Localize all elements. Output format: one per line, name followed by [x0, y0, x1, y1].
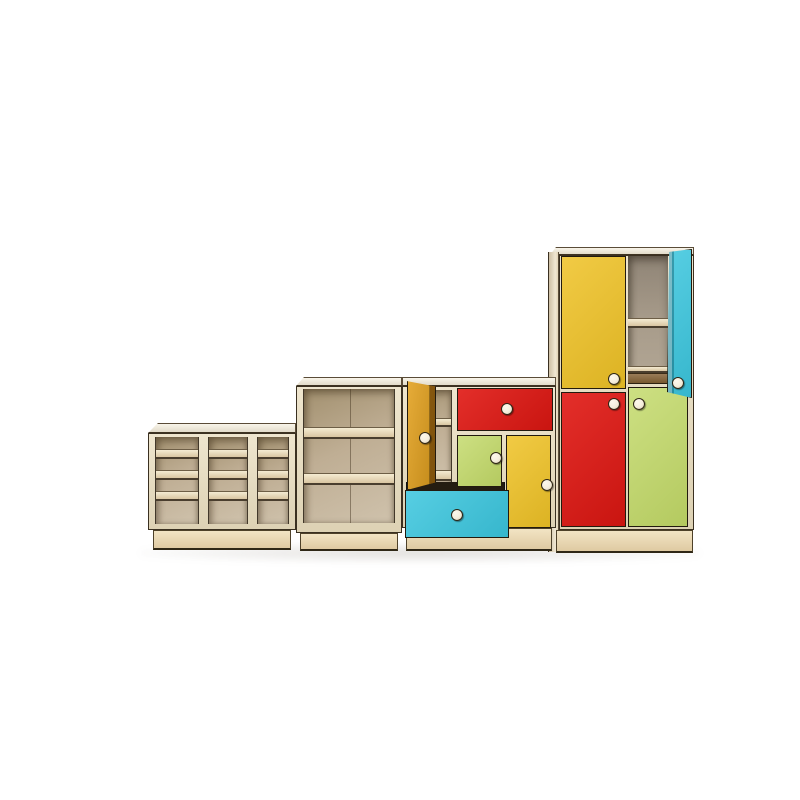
bookshelf-unit — [296, 377, 402, 551]
cubby-shelf — [209, 449, 247, 459]
wardrobe-lime-door-knob — [633, 398, 645, 410]
bookshelf-back-seam — [350, 389, 351, 523]
cabinet-cyan-drawer-knob — [451, 509, 463, 521]
wardrobe-bay-bottom-shelf-edge — [628, 366, 668, 373]
cubby-shelf — [156, 449, 198, 459]
wardrobe-red-door-knob — [608, 398, 620, 410]
cubby-column-1 — [155, 437, 199, 524]
mixed-cabinet-unit — [402, 377, 556, 551]
cabinet-orange-door-knob — [419, 432, 431, 444]
wardrobe-plinth — [556, 530, 693, 553]
wardrobe-bay-shelf — [628, 318, 668, 328]
cubby-unit — [148, 423, 296, 550]
wardrobe-cyan-door-knob — [672, 377, 684, 389]
product-render-scene — [0, 0, 800, 800]
cubby-top-panel — [148, 423, 296, 433]
cubby-shelf — [156, 470, 198, 480]
bookshelf-top-panel — [296, 377, 402, 386]
cubby-shelf — [258, 470, 288, 480]
wardrobe-bay-bottom-shelf — [628, 373, 668, 384]
cubby-column-3 — [257, 437, 289, 524]
cubby-plinth — [153, 530, 291, 550]
wardrobe-yellow-door-knob — [608, 373, 620, 385]
cubby-shelf — [209, 491, 247, 501]
cubby-column-2 — [208, 437, 248, 524]
cubby-shelf — [258, 491, 288, 501]
cabinet-red-drawer-knob — [501, 403, 513, 415]
wardrobe-unit — [548, 247, 695, 553]
wardrobe-red-door — [561, 392, 626, 527]
wardrobe-open-cyan-door — [667, 249, 692, 398]
cabinet-yellow-door-knob — [541, 479, 553, 491]
bookshelf-shelf — [304, 427, 394, 439]
wardrobe-open-bay — [628, 256, 668, 384]
cubby-shelf — [258, 449, 288, 459]
cabinet-lime-door-knob — [490, 452, 502, 464]
cubby-shelf — [156, 491, 198, 501]
wardrobe-yellow-door — [561, 256, 626, 389]
cubby-shelf — [209, 470, 247, 480]
bookshelf-shelf — [304, 473, 394, 485]
bookshelf-plinth — [300, 533, 398, 551]
bookshelf-bay — [303, 389, 395, 523]
